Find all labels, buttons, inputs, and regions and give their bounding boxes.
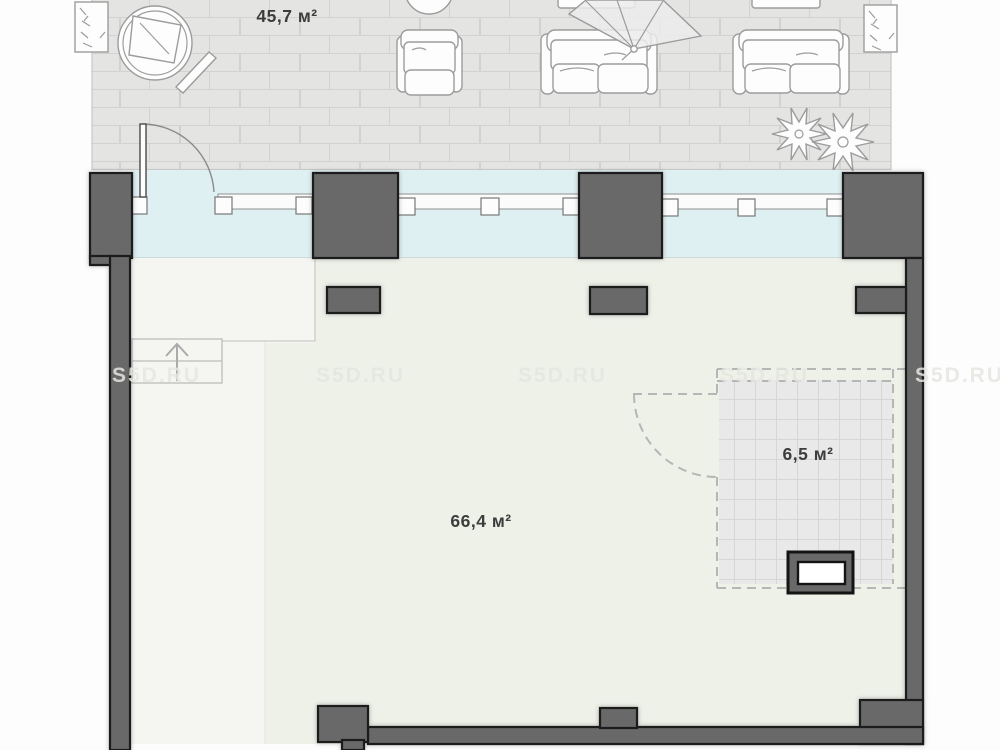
- wall-stub: [342, 740, 364, 750]
- planter-box-icon: [864, 5, 897, 52]
- floor-plan: 45,7 м²: [0, 0, 1000, 750]
- column: [90, 173, 132, 258]
- column: [843, 173, 923, 258]
- watermark: S5D.RU: [316, 364, 405, 387]
- right-wall: [906, 258, 923, 744]
- terrace-area-label: 45,7 м²: [256, 6, 317, 26]
- floor-plan-page: 45,7 м²: [0, 0, 1000, 750]
- planned-room-area-label: 6,5 м²: [783, 444, 834, 464]
- column: [579, 173, 662, 258]
- interior-pier: [590, 287, 647, 314]
- watermark: S5D.RU: [915, 364, 1000, 387]
- sofa-icon: [733, 30, 849, 94]
- planter-box-icon: [75, 2, 108, 52]
- watermark: S5D.RU: [720, 364, 809, 387]
- wall-segment: [90, 256, 112, 265]
- interior-pier: [327, 287, 380, 313]
- left-wall: [110, 256, 130, 750]
- vent-shaft-icon: [788, 552, 853, 593]
- wall-pier: [600, 708, 637, 728]
- bottom-wall: [368, 727, 923, 744]
- terrace: 45,7 м²: [75, 0, 897, 194]
- watermark: S5D.RU: [518, 364, 607, 387]
- watermark: S5D.RU: [112, 364, 201, 387]
- armchair-icon: [397, 30, 462, 95]
- column: [313, 173, 398, 258]
- entry-zone-floor: [130, 258, 315, 343]
- wall-pier: [318, 706, 368, 742]
- side-table-icon: [752, 0, 820, 8]
- living-room-area-label: 66,4 м²: [450, 511, 511, 531]
- interior-pier: [856, 287, 906, 313]
